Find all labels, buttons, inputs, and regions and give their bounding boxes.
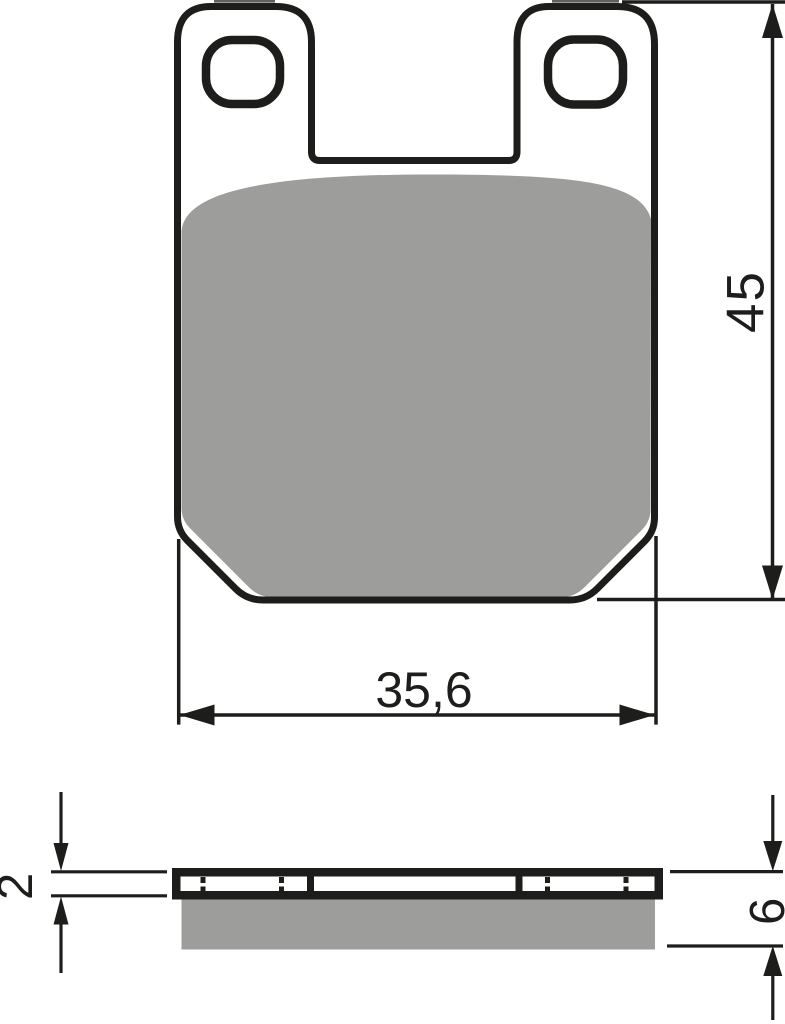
svg-text:2: 2 bbox=[0, 873, 43, 900]
svg-text:6: 6 bbox=[741, 898, 785, 925]
svg-text:35,6: 35,6 bbox=[375, 662, 472, 718]
svg-text:45: 45 bbox=[717, 270, 776, 333]
